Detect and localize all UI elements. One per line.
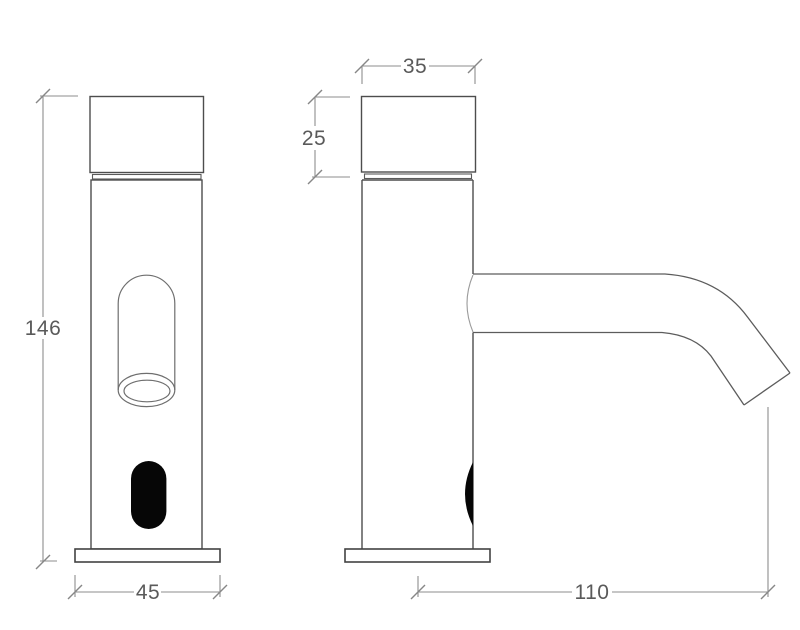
side-view — [345, 97, 790, 563]
dim-110-label: 110 — [575, 581, 610, 604]
front-sensor-window — [131, 461, 166, 529]
side-base-plate — [345, 549, 490, 562]
front-collar-ring — [93, 175, 202, 180]
spout-top-edge — [473, 274, 790, 373]
spout-bottom-edge — [473, 333, 744, 406]
dimension-cap-width: 35 — [355, 55, 482, 84]
front-cap — [90, 97, 204, 173]
dim-25-label: 25 — [302, 127, 326, 150]
front-view — [75, 97, 220, 563]
front-base-plate — [75, 549, 220, 562]
side-cap — [362, 97, 476, 173]
dimension-base-width: 45 — [68, 575, 227, 604]
dim-146-label: 146 — [25, 317, 62, 340]
side-sensor-window — [465, 462, 473, 526]
dimension-cap-height: 25 — [299, 90, 350, 184]
dimension-spout-reach: 110 — [411, 407, 775, 604]
spout-junction-arc — [467, 275, 473, 332]
technical-drawing-page: 146 45 35 — [0, 0, 800, 630]
side-collar-ring — [365, 174, 472, 179]
dimension-overall-height: 146 — [24, 89, 78, 569]
dim-45-label: 45 — [136, 581, 160, 604]
dim-35-label: 35 — [403, 55, 427, 78]
side-body — [362, 180, 473, 549]
spout-tip-edge — [744, 373, 790, 405]
faucet-technical-drawing: 146 45 35 — [0, 0, 800, 630]
